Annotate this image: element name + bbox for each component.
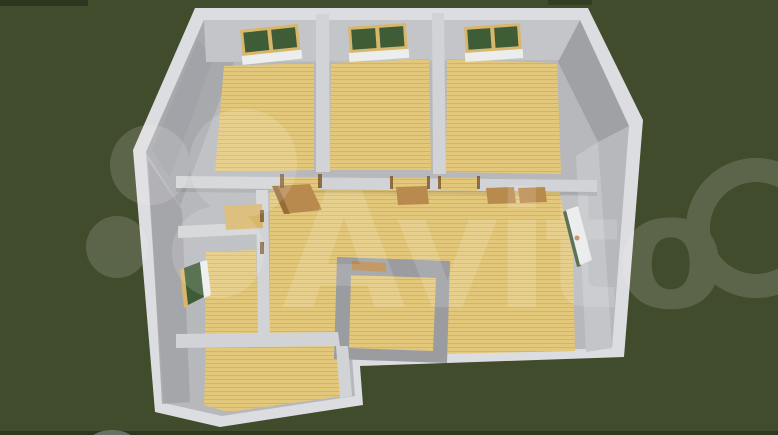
watermark-logo-circle-1 — [110, 125, 190, 205]
wall-room1-room2 — [316, 14, 330, 172]
watermark-logo-circle-2 — [189, 109, 297, 217]
watermark-logo-circle-3 — [86, 216, 148, 278]
window-3 — [463, 23, 523, 62]
window-2 — [347, 23, 409, 62]
room-top-middle-floor — [330, 59, 431, 170]
watermark-logo-circle-4 — [172, 206, 264, 298]
floorplan-svg: Avito — [0, 0, 778, 435]
top-windows — [239, 23, 523, 65]
avito-watermark-text: Avito — [282, 158, 721, 345]
floorplan-render: Avito — [0, 0, 778, 435]
wall-room2-room3 — [432, 13, 446, 174]
window-1 — [239, 24, 302, 65]
room-top-right-floor — [446, 59, 561, 174]
